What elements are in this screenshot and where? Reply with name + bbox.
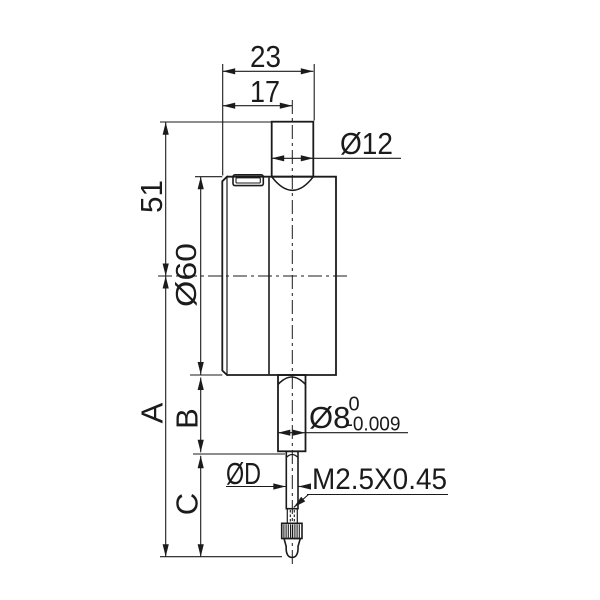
dim-label-51: 51	[134, 180, 169, 213]
dim-label-dia8: Ø8	[309, 400, 350, 435]
dimensions: 23 17 Ø12 51 A Ø	[134, 39, 448, 557]
dimension-C: C	[170, 456, 205, 557]
tolerance-lower: -0.009	[347, 414, 401, 436]
dimension-A: A	[135, 276, 170, 557]
dim-label-thread: M2.5X0.45	[312, 463, 447, 496]
dimension-thread: M2.5X0.45	[294, 463, 448, 507]
dim-label-diaD: ØD	[226, 456, 261, 491]
bezel-clamp-inner	[236, 178, 260, 183]
dimension-B: B	[170, 378, 286, 455]
dim-label-A: A	[135, 402, 170, 423]
dim-label-dia60: Ø60	[171, 243, 203, 307]
lower-stem-root-arc	[278, 377, 306, 385]
dim-label-23: 23	[250, 39, 281, 74]
dimension-dia12: Ø12	[272, 126, 401, 161]
dim-label-dia12: Ø12	[340, 126, 393, 161]
dimension-17: 17	[223, 74, 293, 109]
dim-label-B: B	[170, 408, 205, 429]
lower-stem	[278, 375, 306, 451]
leader-line	[294, 495, 309, 508]
drawing-canvas: 23 17 Ø12 51 A Ø	[0, 0, 600, 600]
dimension-dia8: Ø8 0 -0.009	[278, 394, 408, 436]
technical-drawing: 23 17 Ø12 51 A Ø	[0, 0, 600, 600]
knurl-hatching	[284, 524, 299, 537]
tolerance-upper: 0	[349, 394, 360, 416]
dim-label-17: 17	[250, 74, 280, 109]
dim-label-C: C	[170, 493, 205, 515]
